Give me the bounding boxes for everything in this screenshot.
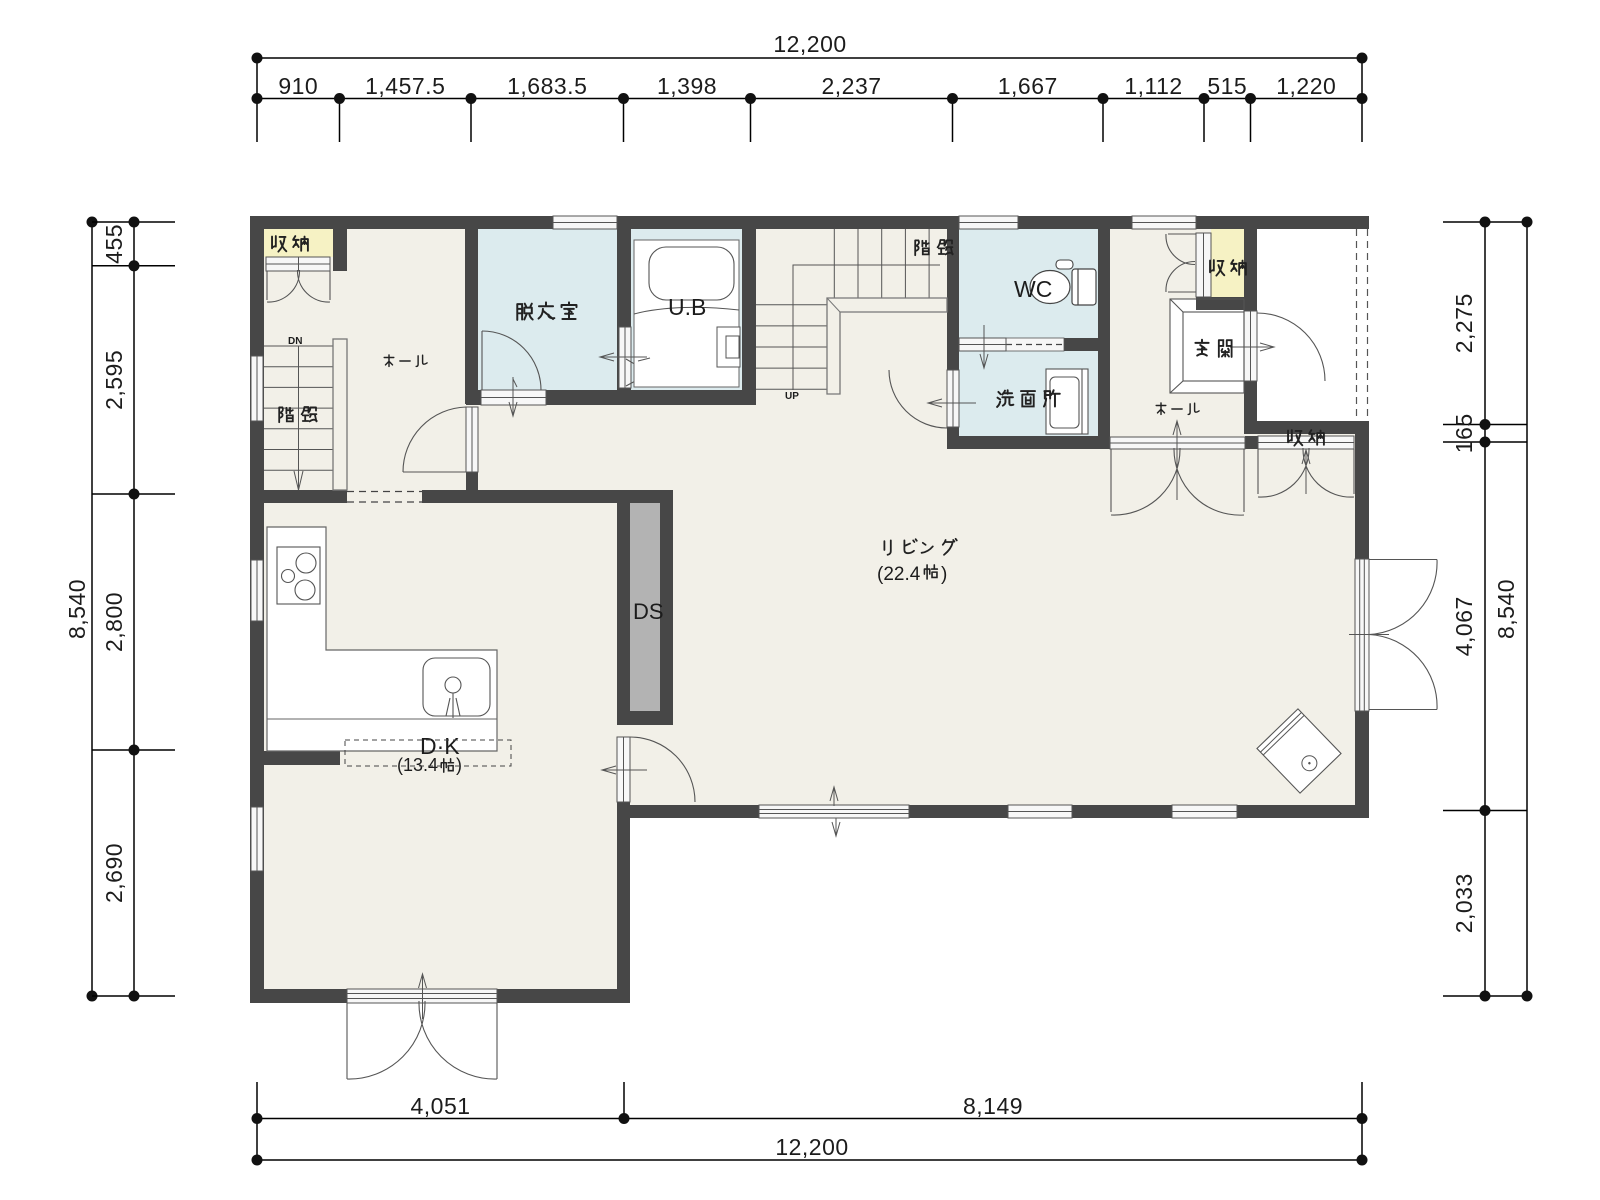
svg-text:455: 455 — [101, 224, 127, 264]
svg-text:WC: WC — [1014, 276, 1052, 302]
svg-text:(13.4: (13.4 — [397, 755, 438, 775]
svg-text:8,149: 8,149 — [963, 1093, 1023, 1119]
svg-text:910: 910 — [278, 73, 318, 99]
svg-text:515: 515 — [1207, 73, 1247, 99]
svg-text:1,457.5: 1,457.5 — [365, 73, 445, 99]
svg-text:2,275: 2,275 — [1451, 293, 1477, 353]
svg-text:4,051: 4,051 — [410, 1093, 470, 1119]
svg-text:165: 165 — [1451, 413, 1477, 453]
svg-text:UP: UP — [785, 391, 799, 402]
svg-text:1,112: 1,112 — [1124, 73, 1182, 99]
svg-text:8,540: 8,540 — [64, 579, 90, 639]
svg-text:1,683.5: 1,683.5 — [507, 73, 587, 99]
svg-text:12,200: 12,200 — [775, 1134, 848, 1160]
svg-text:8,540: 8,540 — [1493, 579, 1519, 639]
svg-text:1,667: 1,667 — [998, 73, 1058, 99]
svg-text:(22.4: (22.4 — [877, 564, 921, 585]
svg-text:DN: DN — [288, 336, 302, 347]
svg-text:): ) — [941, 564, 947, 585]
svg-text:2,690: 2,690 — [101, 843, 127, 903]
svg-text:): ) — [456, 755, 462, 775]
svg-text:DS: DS — [633, 599, 664, 624]
svg-text:U.B: U.B — [668, 294, 706, 320]
svg-text:1,398: 1,398 — [657, 73, 717, 99]
svg-text:12,200: 12,200 — [773, 31, 846, 57]
svg-text:2,033: 2,033 — [1451, 873, 1477, 933]
svg-text:2,237: 2,237 — [821, 73, 881, 99]
svg-text:1,220: 1,220 — [1276, 73, 1336, 99]
svg-text:2,595: 2,595 — [101, 350, 127, 410]
svg-text:4,067: 4,067 — [1451, 596, 1477, 656]
svg-text:2,800: 2,800 — [101, 592, 127, 652]
